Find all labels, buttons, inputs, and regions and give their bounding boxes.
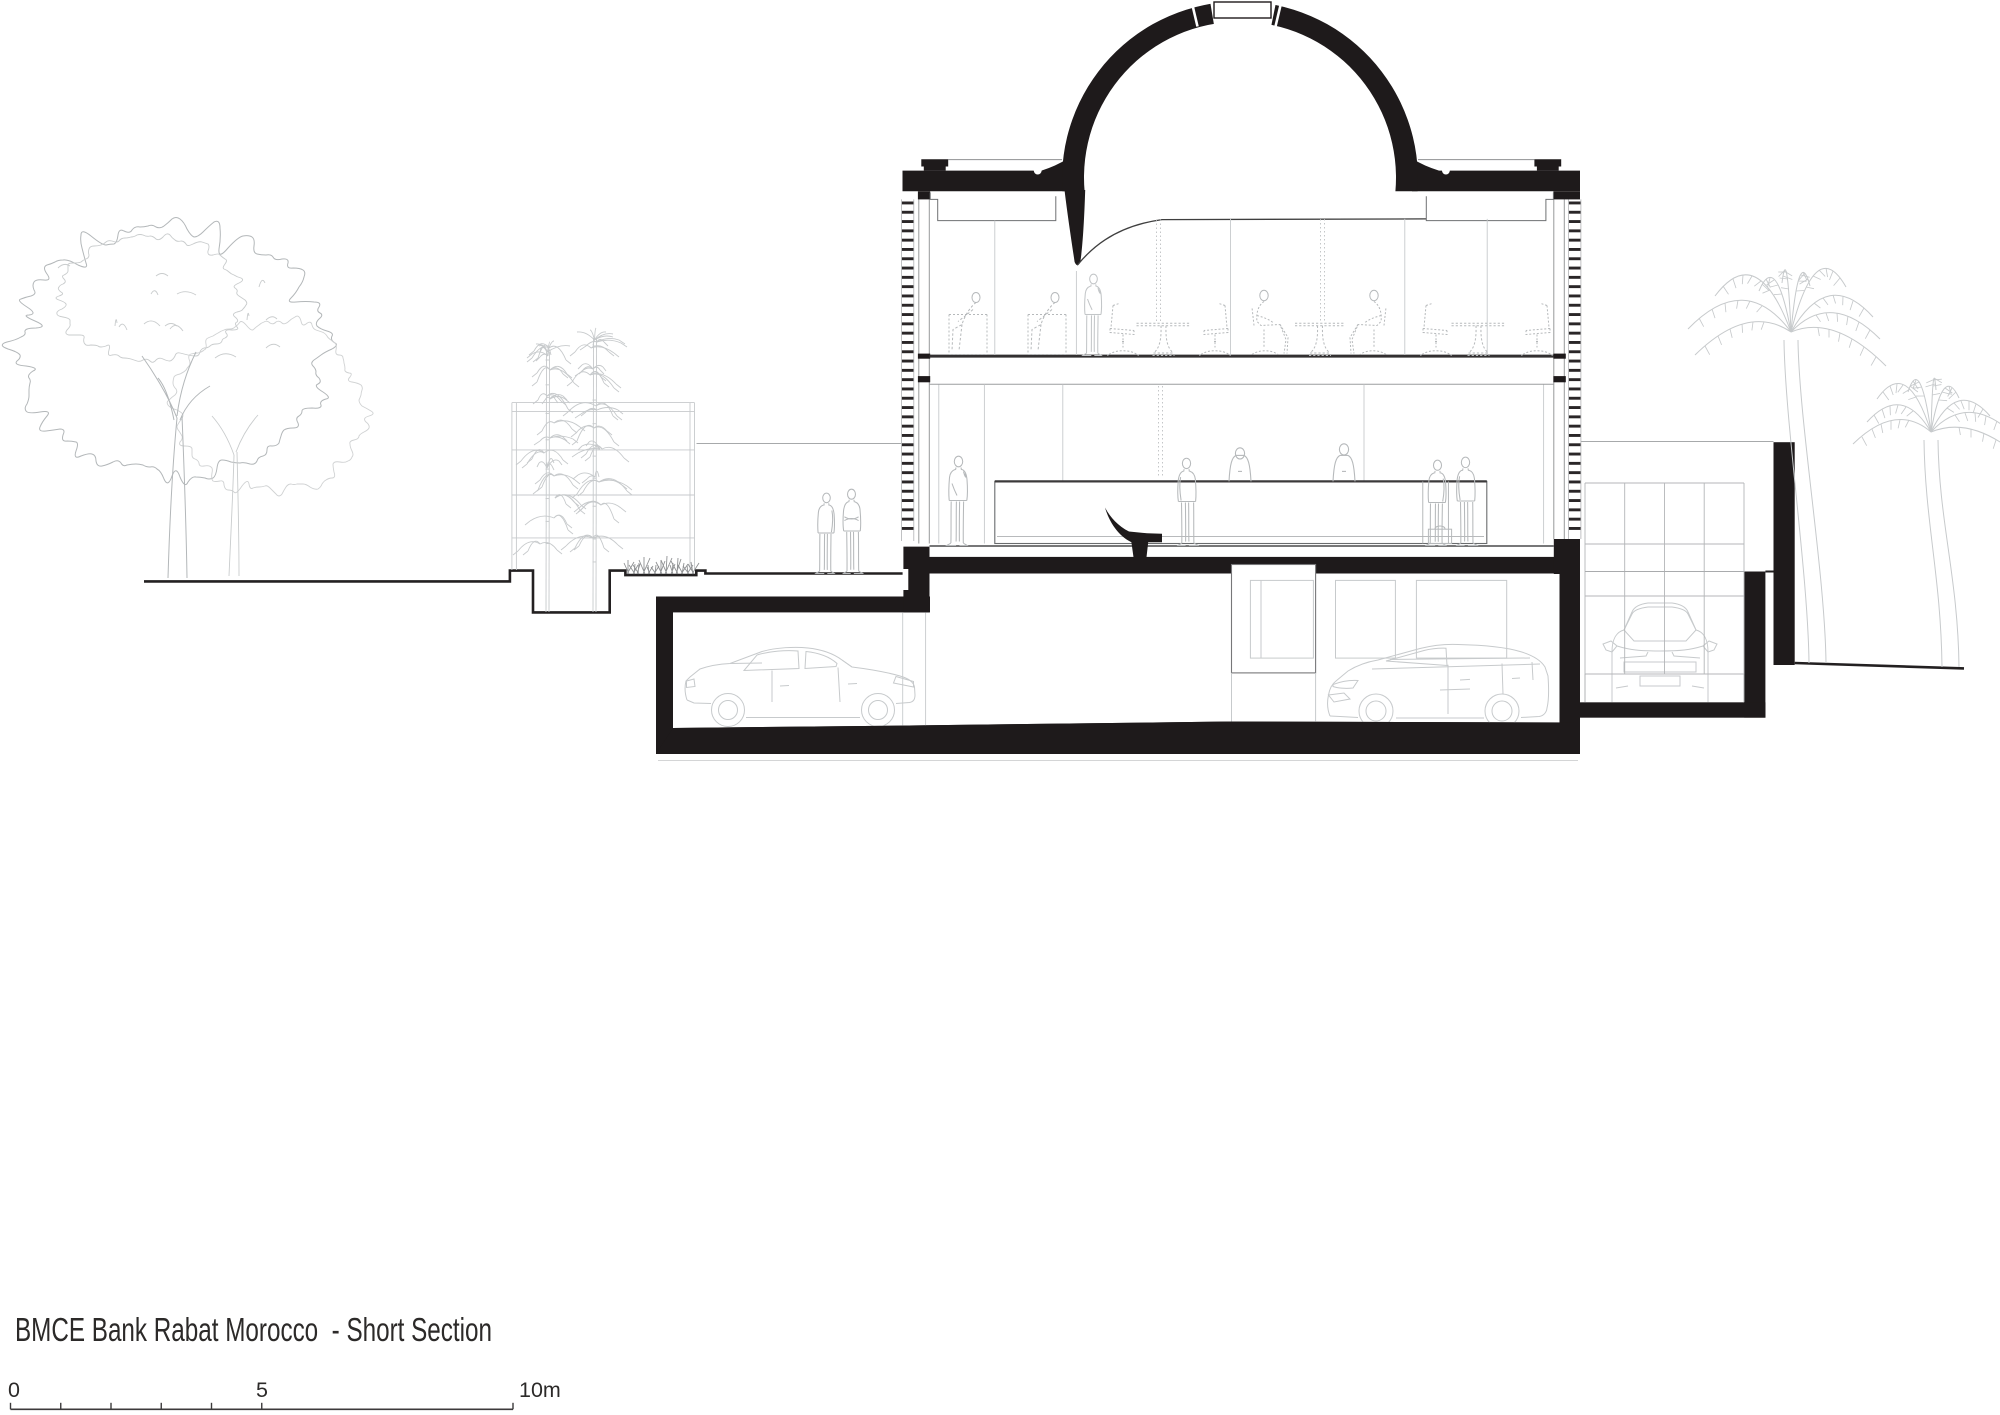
svg-text:BMCE Bank Rabat Morocco - Sho: BMCE Bank Rabat Morocco - Short Section	[15, 1312, 492, 1349]
svg-text:10m: 10m	[519, 1378, 561, 1402]
svg-text:5: 5	[256, 1378, 268, 1402]
svg-text:0: 0	[8, 1378, 20, 1402]
